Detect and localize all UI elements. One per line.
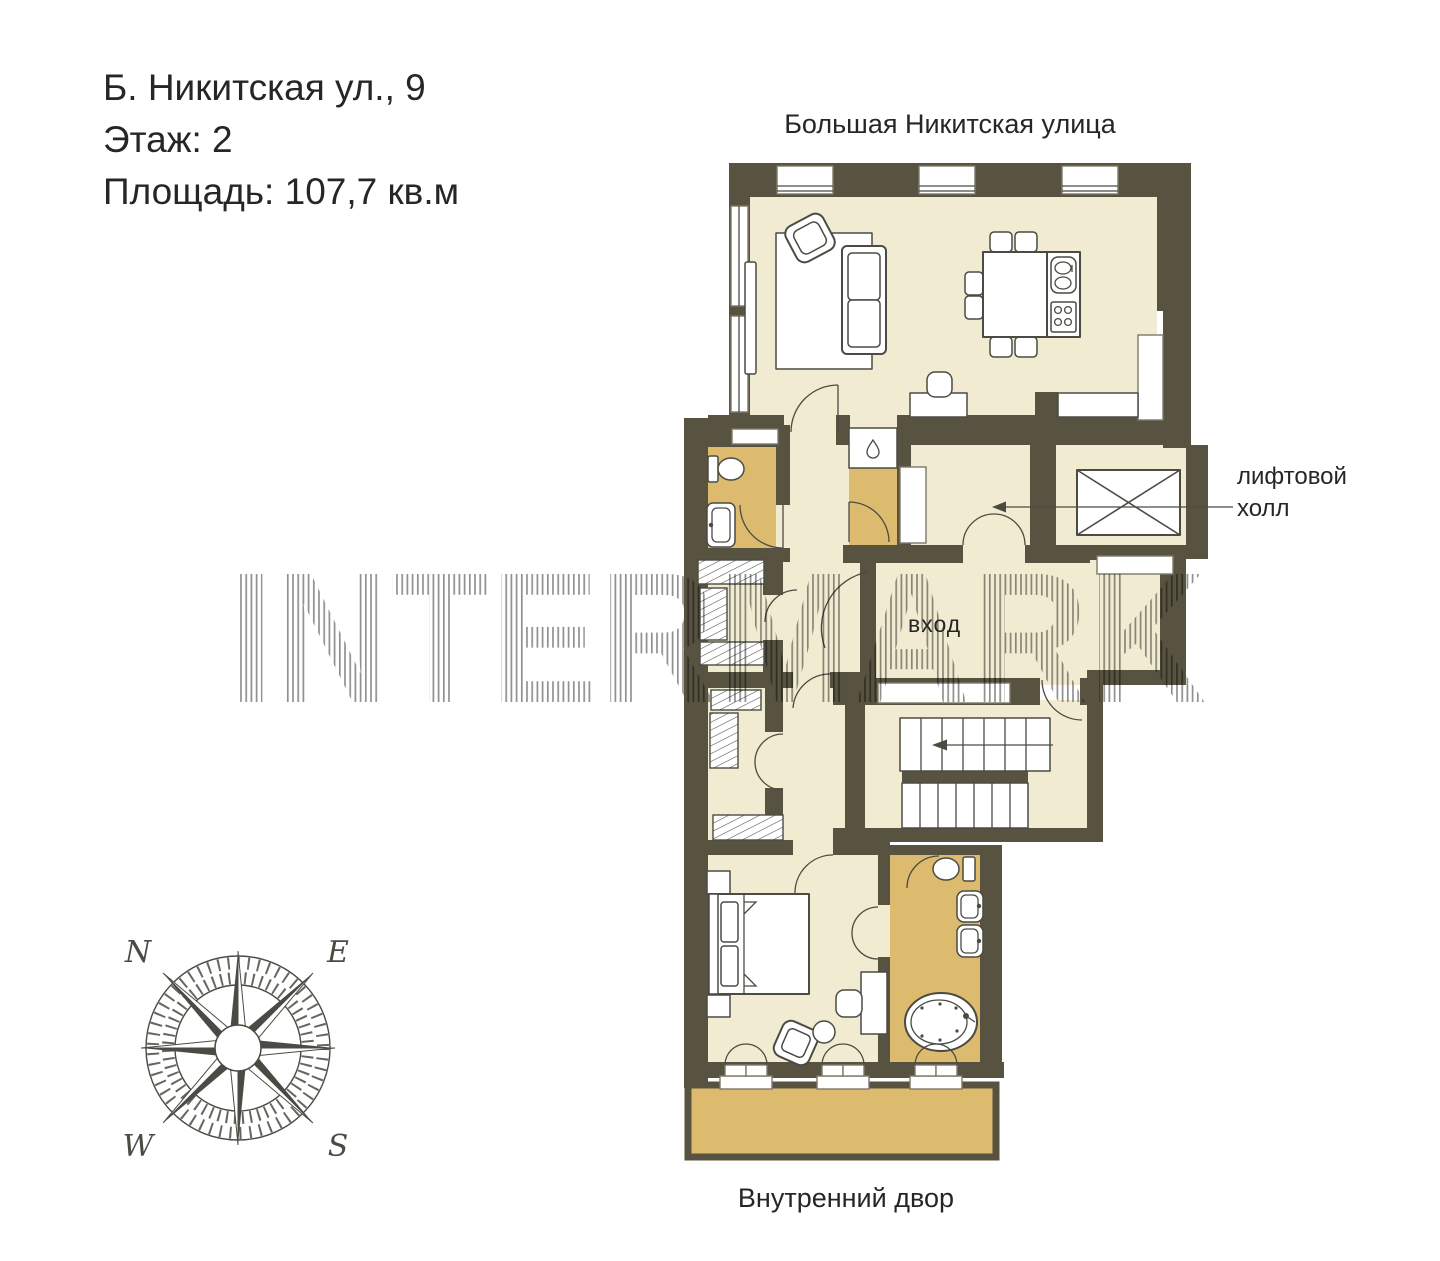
- watermark-text: INTERMARK: [228, 535, 1206, 742]
- compass-north-label: N: [124, 935, 153, 970]
- toilet-icon: [933, 857, 975, 881]
- courtyard-label: Внутренний двор: [738, 1183, 954, 1213]
- floor-line: Этаж: 2: [103, 119, 233, 160]
- laundry-fixtures: [849, 428, 897, 468]
- compass-south-label: S: [328, 1129, 349, 1164]
- compass-west-label: W: [123, 1129, 156, 1164]
- lift-hall-label-line1: лифтовой: [1237, 463, 1347, 490]
- street-window-3: [1062, 166, 1118, 194]
- wardrobe-icon: [713, 815, 783, 840]
- bathtub-icon: [905, 993, 977, 1051]
- bed-icon: [709, 894, 809, 994]
- balcony: [688, 1085, 996, 1157]
- compass-east-label: E: [326, 935, 349, 970]
- address-line: Б. Никитская ул., 9: [103, 67, 426, 108]
- watermark: INTERMARK: [228, 535, 1206, 742]
- sofa-icon: [842, 246, 886, 354]
- sink-icon: [957, 891, 983, 922]
- area-line: Площадь: 107,7 кв.м: [103, 171, 459, 212]
- dresser-icon: [861, 972, 887, 1034]
- tv-panel-icon: [745, 262, 756, 374]
- street-label: Большая Никитская улица: [784, 109, 1117, 139]
- pouf-icon: [813, 1021, 835, 1043]
- nightstand-icon: [707, 871, 730, 894]
- entrance-label: вход: [908, 611, 961, 637]
- elevator-shaft-icon: [1077, 470, 1180, 535]
- sink-icon: [957, 925, 983, 957]
- compass-rose-icon: N E W S: [123, 935, 349, 1164]
- lift-hall-label-line2: холл: [1237, 495, 1290, 522]
- street-window-1: [777, 166, 833, 194]
- wc-niche: [732, 429, 778, 444]
- water-heater-icon: [849, 428, 897, 468]
- hall-duct: [900, 467, 926, 543]
- lift-hall-door-opening: [1138, 335, 1163, 420]
- street-window-2: [919, 166, 975, 194]
- floor-plan-page: INTERMARK Б. Никитская ул., 9 Этаж: 2 Пл…: [0, 0, 1440, 1261]
- kitchen-unit-icon: [1047, 252, 1080, 337]
- stool-icon: [927, 372, 952, 397]
- nightstand-icon: [707, 995, 730, 1017]
- chair-icon: [836, 990, 862, 1017]
- counter-icon: [1058, 393, 1138, 417]
- toilet-icon: [708, 456, 744, 482]
